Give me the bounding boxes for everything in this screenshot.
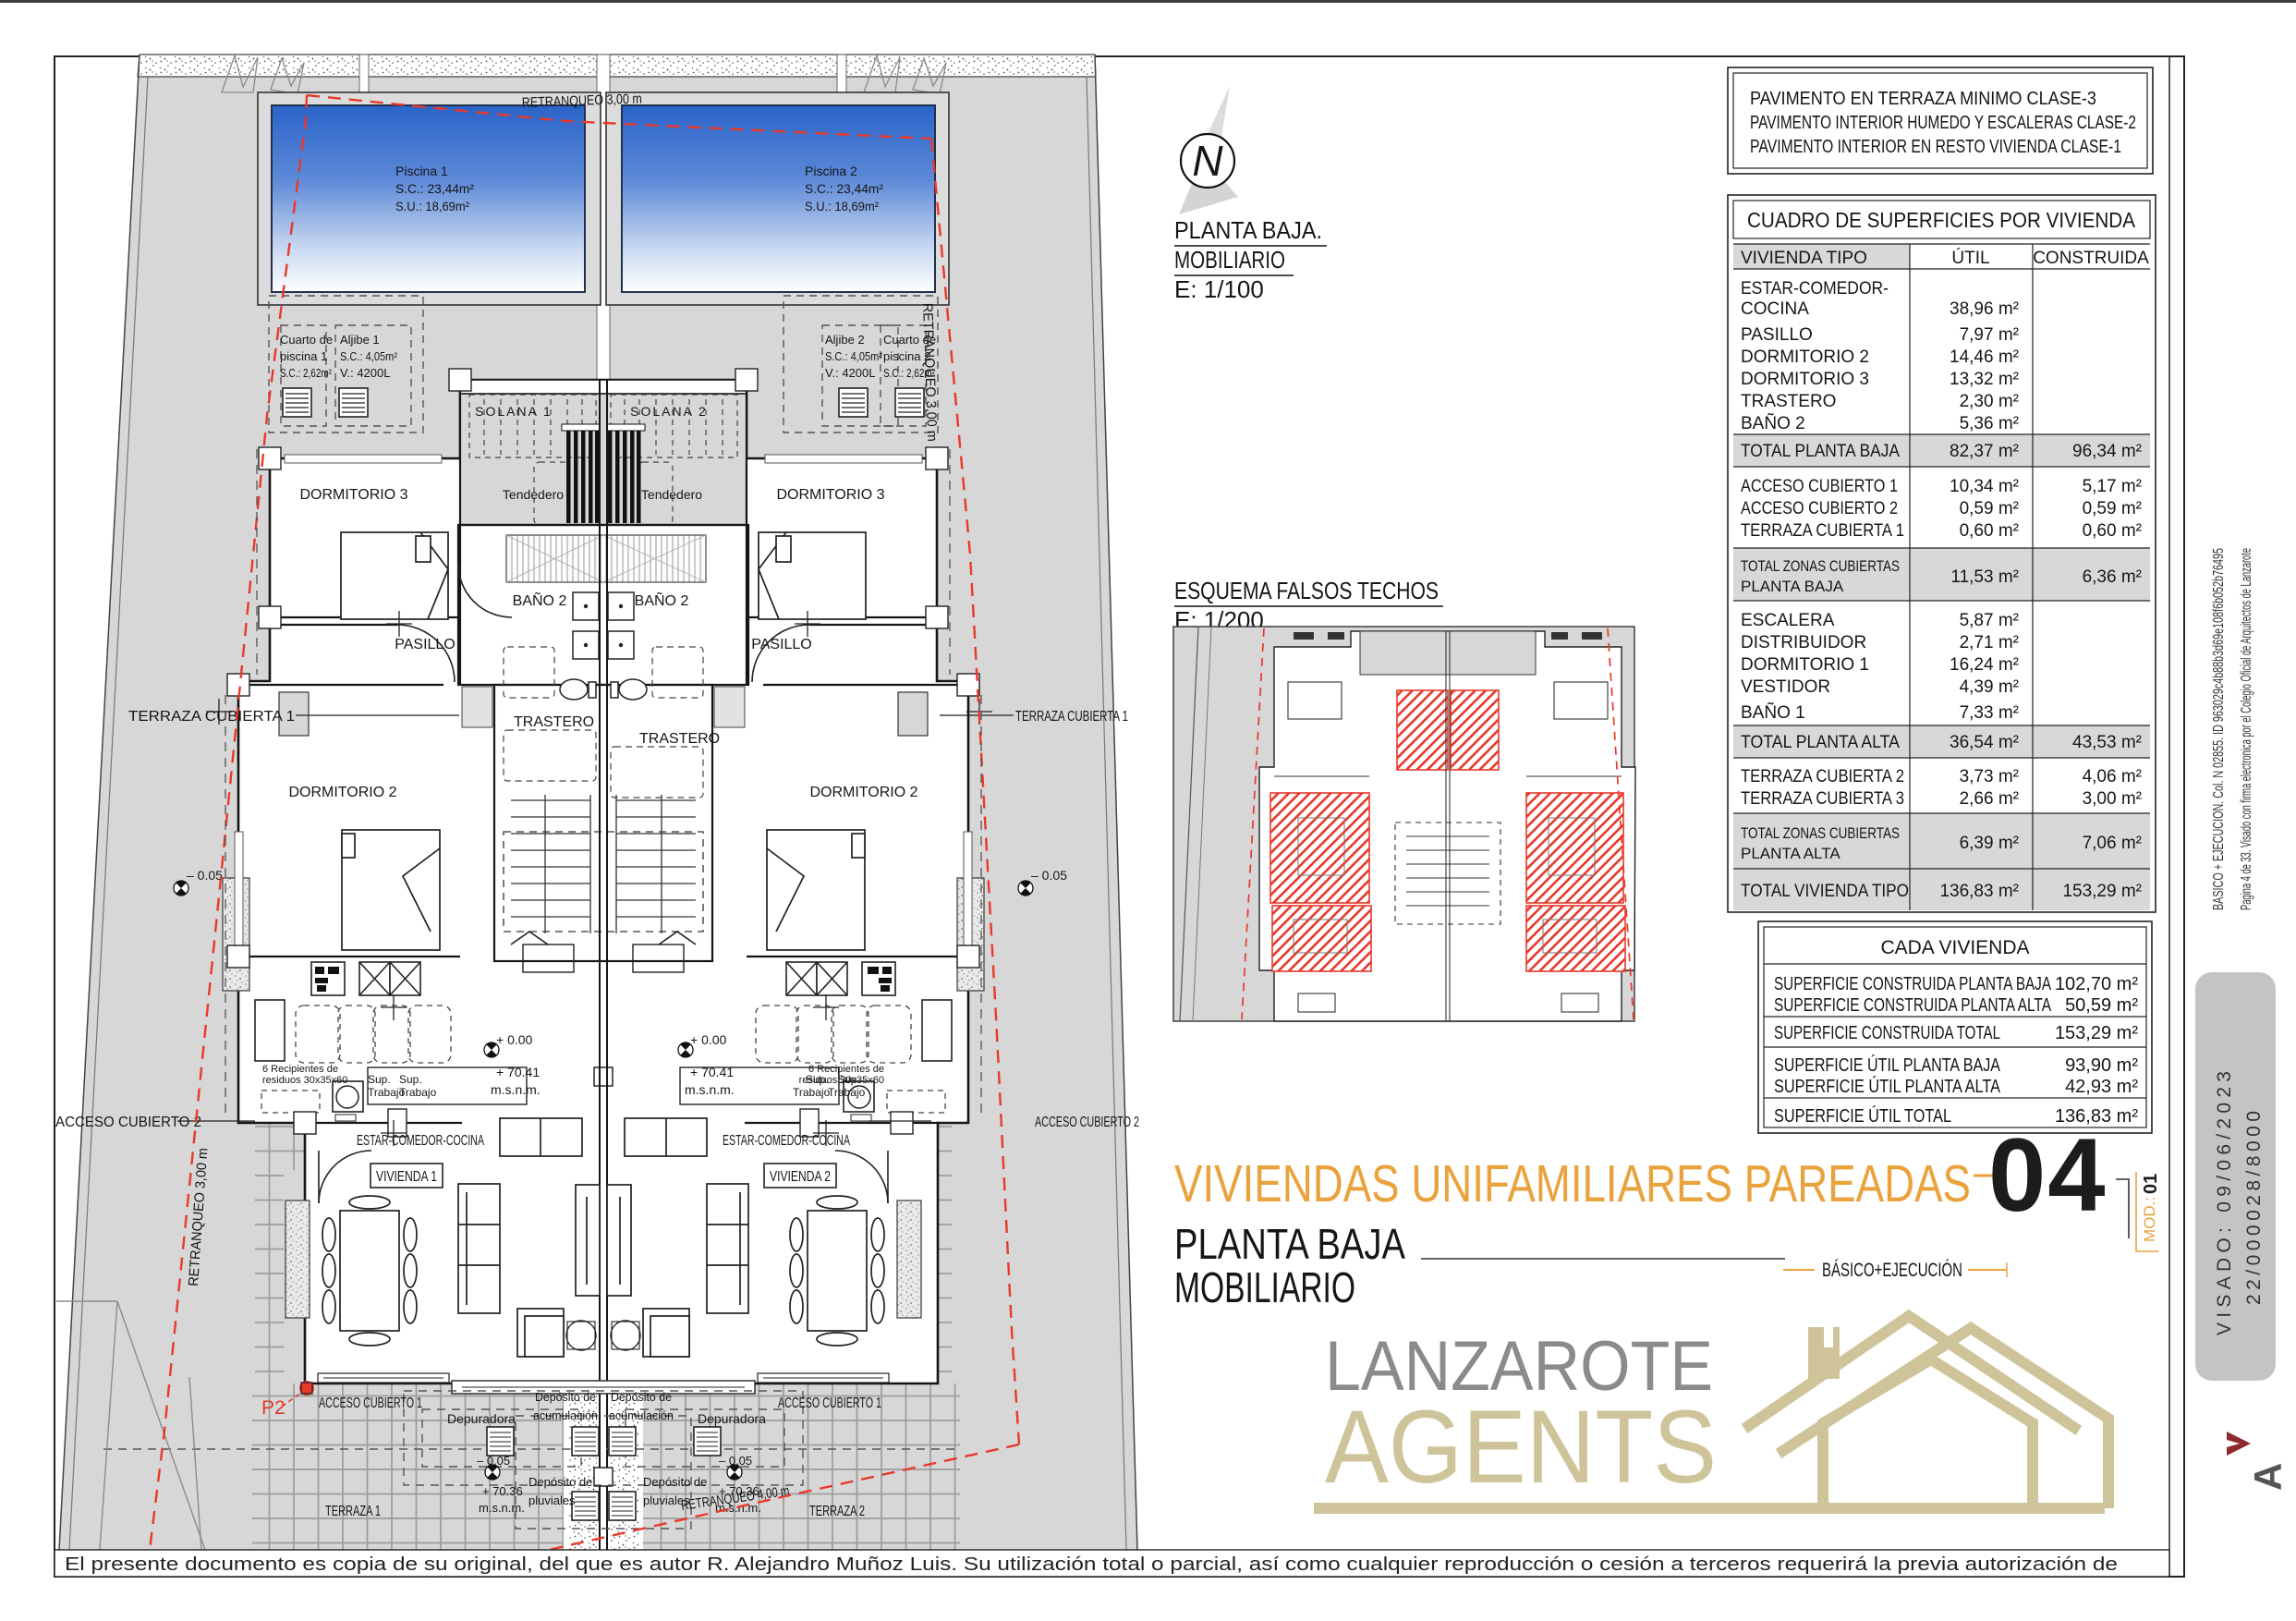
svg-text:TRASTERO: TRASTERO	[514, 714, 594, 730]
svg-text:S.C.: 4,05m²: S.C.: 4,05m²	[825, 349, 883, 363]
svg-text:AGENTS: AGENTS	[1325, 1389, 1717, 1505]
svg-text:136,83 m²: 136,83 m²	[1939, 882, 2019, 901]
svg-text:PLANTA BAJA: PLANTA BAJA	[1741, 578, 1844, 595]
svg-text:SUPERFICIE ÚTIL TOTAL: SUPERFICIE ÚTIL TOTAL	[1774, 1105, 1951, 1127]
svg-text:16,24 m²: 16,24 m²	[1950, 655, 2019, 675]
svg-text:6,36 m²: 6,36 m²	[2083, 567, 2142, 587]
svg-text:COCINA: COCINA	[1741, 299, 1809, 319]
svg-text:m.s.n.m.: m.s.n.m.	[479, 1501, 525, 1515]
svg-text:S.C.: 23,44m²: S.C.: 23,44m²	[805, 181, 883, 196]
svg-text:BÁSICO+EJECUCIÓN: BÁSICO+EJECUCIÓN	[1822, 1260, 1962, 1281]
svg-text:6 Recipientes de: 6 Recipientes de	[262, 1064, 338, 1075]
svg-text:V.: 4200L: V.: 4200L	[825, 366, 875, 380]
svg-text:36,54 m²: 36,54 m²	[1950, 733, 2019, 752]
svg-text:01: 01	[2141, 1174, 2161, 1194]
svg-text:PLANTA ALTA: PLANTA ALTA	[1741, 845, 1840, 862]
svg-text:TERRAZA CUBIERTA 1: TERRAZA CUBIERTA 1	[1015, 709, 1128, 725]
svg-text:PAVIMENTO INTERIOR HUMEDO Y ES: PAVIMENTO INTERIOR HUMEDO Y ESCALERAS CL…	[1750, 113, 2136, 133]
svg-text:residuos 30x35x60: residuos 30x35x60	[262, 1075, 347, 1086]
svg-text:m.s.n.m.: m.s.n.m.	[685, 1082, 735, 1097]
svg-text:PLANTA BAJA.: PLANTA BAJA.	[1174, 216, 1322, 244]
svg-text:DISTRIBUIDOR: DISTRIBUIDOR	[1741, 633, 1866, 652]
svg-text:TERRAZA CUBIERTA 1: TERRAZA CUBIERTA 1	[1741, 521, 1904, 541]
svg-text:– 0.05: – 0.05	[1031, 868, 1067, 883]
svg-text:S.C.: 2,62m²: S.C.: 2,62m²	[280, 366, 333, 380]
svg-text:TRASTERO: TRASTERO	[1741, 392, 1836, 411]
svg-text:Sup.: Sup.	[806, 1073, 829, 1086]
svg-text:+ 0.00: + 0.00	[496, 1032, 533, 1047]
svg-text:11,53 m²: 11,53 m²	[1950, 567, 2019, 587]
svg-text:TOTAL ZONAS CUBIERTAS: TOTAL ZONAS CUBIERTAS	[1741, 824, 1900, 842]
svg-text:+ 0.00: + 0.00	[690, 1032, 727, 1047]
svg-text:2,66 m²: 2,66 m²	[1960, 789, 2019, 809]
svg-text:TRASTERO: TRASTERO	[639, 731, 720, 747]
svg-text:ACCESO CUBIERTO 1: ACCESO CUBIERTO 1	[319, 1396, 422, 1411]
svg-text:7,97 m²: 7,97 m²	[1960, 325, 2019, 345]
svg-text:10,34 m²: 10,34 m²	[1950, 477, 2019, 496]
svg-text:ACCESO CUBIERTO 1: ACCESO CUBIERTO 1	[1741, 477, 1898, 496]
svg-text:96,34 m²: 96,34 m²	[2072, 442, 2142, 461]
svg-text:Piscina 1: Piscina 1	[395, 164, 448, 178]
svg-text:– 0.05: – 0.05	[187, 868, 223, 883]
svg-text:5,17 m²: 5,17 m²	[2083, 477, 2142, 496]
svg-text:SOLANA 1: SOLANA 1	[475, 404, 553, 419]
svg-text:Piscina 2: Piscina 2	[805, 164, 857, 178]
svg-text:E: 1/100: E: 1/100	[1174, 275, 1264, 303]
svg-text:MOBILIARIO: MOBILIARIO	[1174, 246, 1285, 274]
svg-text:CONSTRUIDA: CONSTRUIDA	[2033, 249, 2149, 268]
svg-text:SUPERFICIE CONSTRUIDA PLANTA B: SUPERFICIE CONSTRUIDA PLANTA BAJA	[1774, 974, 2052, 994]
svg-text:TOTAL PLANTA BAJA: TOTAL PLANTA BAJA	[1741, 442, 1900, 461]
svg-text:Sup.: Sup.	[399, 1073, 422, 1086]
svg-text:4,39 m²: 4,39 m²	[1960, 677, 2019, 697]
svg-text:ACCESO CUBIERTO 1: ACCESO CUBIERTO 1	[778, 1396, 881, 1411]
svg-text:DORMITORIO 2: DORMITORIO 2	[288, 785, 396, 800]
svg-text:ACCESO CUBIERTO 2: ACCESO CUBIERTO 2	[1741, 499, 1898, 518]
svg-text:VIVIENDA 2: VIVIENDA 2	[770, 1169, 831, 1185]
svg-text:TOTAL VIVIENDA TIPO: TOTAL VIVIENDA TIPO	[1741, 882, 1909, 901]
svg-text:BAÑO 2: BAÑO 2	[1741, 413, 1805, 433]
svg-text:Depósito de: Depósito de	[535, 1390, 596, 1404]
svg-text:0,60 m²: 0,60 m²	[1960, 521, 2019, 541]
svg-text:7,06 m²: 7,06 m²	[2083, 834, 2142, 853]
svg-text:Depuradora: Depuradora	[698, 1411, 766, 1426]
svg-text:MOBILIARIO: MOBILIARIO	[1174, 1263, 1355, 1311]
svg-text:+ 70.41: + 70.41	[690, 1065, 734, 1079]
svg-text:3,73 m²: 3,73 m²	[1960, 767, 2019, 786]
svg-text:5,87 m²: 5,87 m²	[1960, 611, 2019, 630]
svg-text:PASILLO: PASILLO	[751, 637, 812, 652]
svg-text:S.C.: 4,05m²: S.C.: 4,05m²	[340, 349, 398, 363]
svg-text:Depuradora: Depuradora	[447, 1411, 516, 1426]
svg-text:V.: 4200L: V.: 4200L	[340, 366, 390, 380]
svg-text:TERRAZA CUBIERTA 3: TERRAZA CUBIERTA 3	[1741, 789, 1904, 809]
svg-text:TOTAL PLANTA ALTA: TOTAL PLANTA ALTA	[1741, 733, 1900, 752]
svg-text:93,90 m²: 93,90 m²	[2065, 1055, 2138, 1076]
svg-text:PAVIMENTO INTERIOR EN RESTO VI: PAVIMENTO INTERIOR EN RESTO VIVIENDA CLA…	[1750, 137, 2121, 157]
svg-text:Pagina 4 de 33. Visado con fir: Pagina 4 de 33. Visado con firma electro…	[2239, 548, 2254, 910]
svg-text:acumulación: acumulación	[533, 1408, 598, 1422]
svg-text:Tendedero: Tendedero	[503, 487, 564, 502]
svg-text:+ 70.41: + 70.41	[496, 1065, 540, 1079]
svg-text:42,93 m²: 42,93 m²	[2065, 1077, 2138, 1097]
svg-text:DORMITORIO 3: DORMITORIO 3	[299, 487, 407, 503]
svg-text:3,00 m²: 3,00 m²	[2083, 789, 2142, 809]
svg-text:Depósito de: Depósito de	[611, 1390, 672, 1404]
svg-text:0,60 m²: 0,60 m²	[2083, 521, 2142, 541]
svg-text:CADA VIVIENDA: CADA VIVIENDA	[1880, 937, 2029, 958]
svg-text:acumulación: acumulación	[609, 1408, 674, 1422]
svg-text:ESTAR-COMEDOR-COCINA: ESTAR-COMEDOR-COCINA	[723, 1133, 850, 1149]
svg-text:SOLANA 2: SOLANA 2	[630, 404, 708, 419]
svg-text:S.C.: 23,44m²: S.C.: 23,44m²	[395, 181, 474, 196]
svg-text:A: A	[2246, 1463, 2290, 1491]
svg-text:S.U.: 18,69m²: S.U.: 18,69m²	[395, 199, 469, 213]
svg-text:13,32 m²: 13,32 m²	[1950, 370, 2019, 389]
svg-text:50,59 m²: 50,59 m²	[2065, 995, 2138, 1016]
svg-text:P2: P2	[261, 1397, 285, 1419]
svg-text:BAÑO 2: BAÑO 2	[513, 591, 567, 609]
svg-text:7,33 m²: 7,33 m²	[1960, 703, 2019, 723]
svg-text:Sup.: Sup.	[368, 1073, 391, 1086]
svg-text:PASILLO: PASILLO	[395, 637, 456, 652]
svg-text:DORMITORIO 3: DORMITORIO 3	[776, 487, 884, 503]
svg-text:Trabajo: Trabajo	[828, 1086, 866, 1099]
svg-text:0,59 m²: 0,59 m²	[2083, 499, 2142, 518]
svg-text:BAÑO 1: BAÑO 1	[1741, 702, 1805, 723]
svg-text:ESCALERA: ESCALERA	[1741, 611, 1835, 630]
svg-text:82,37 m²: 82,37 m²	[1950, 442, 2019, 461]
svg-text:PAVIMENTO EN TERRAZA MINIMO CL: PAVIMENTO EN TERRAZA MINIMO CLASE-3	[1750, 89, 2096, 109]
svg-text:m.s.n.m.: m.s.n.m.	[491, 1082, 541, 1097]
svg-text:VIVIENDA 1: VIVIENDA 1	[376, 1169, 437, 1185]
svg-text:ESQUEMA FALSOS TECHOS: ESQUEMA FALSOS TECHOS	[1174, 577, 1439, 604]
svg-text:piscina 1: piscina 1	[280, 349, 327, 363]
svg-text:153,29 m²: 153,29 m²	[2062, 882, 2142, 901]
svg-text:+ 70.36: + 70.36	[482, 1484, 523, 1498]
svg-text:43,53 m²: 43,53 m²	[2072, 733, 2142, 752]
svg-text:TOTAL ZONAS CUBIERTAS: TOTAL ZONAS CUBIERTAS	[1741, 557, 1900, 575]
svg-text:VIVIENDAS UNIFAMILIARES PAREAD: VIVIENDAS UNIFAMILIARES PAREADAS	[1174, 1154, 1971, 1213]
svg-text:Sup.: Sup.	[837, 1073, 860, 1086]
svg-text:BAÑO 2: BAÑO 2	[635, 591, 689, 609]
svg-text:Aljibe 2: Aljibe 2	[825, 333, 865, 347]
svg-text:Cuarto de: Cuarto de	[280, 333, 333, 347]
svg-text:SUPERFICIE CONSTRUIDA TOTAL: SUPERFICIE CONSTRUIDA TOTAL	[1774, 1023, 2000, 1043]
svg-text:MOD.:: MOD.:	[2141, 1197, 2158, 1242]
svg-text:Trabajo: Trabajo	[793, 1086, 831, 1099]
svg-text:ÚTIL: ÚTIL	[1951, 248, 1989, 268]
svg-text:VIVIENDA TIPO: VIVIENDA TIPO	[1741, 249, 1867, 268]
svg-text:TERRAZA 2: TERRAZA 2	[809, 1504, 865, 1519]
svg-text:Tendedero: Tendedero	[641, 487, 702, 502]
svg-text:PASILLO: PASILLO	[1741, 325, 1813, 345]
svg-text:102,70 m²: 102,70 m²	[2055, 974, 2138, 994]
svg-text:153,29 m²: 153,29 m²	[2055, 1023, 2138, 1043]
svg-text:Trabajo: Trabajo	[399, 1086, 437, 1099]
svg-text:SUPERFICIE ÚTIL PLANTA ALTA: SUPERFICIE ÚTIL PLANTA ALTA	[1774, 1076, 2001, 1097]
svg-text:S.U.: 18,69m²: S.U.: 18,69m²	[805, 199, 879, 213]
svg-text:38,96 m²: 38,96 m²	[1950, 299, 2019, 319]
svg-text:Depósito de: Depósito de	[528, 1475, 592, 1489]
svg-text:Aljibe 1: Aljibe 1	[340, 333, 380, 347]
svg-text:5,36 m²: 5,36 m²	[1960, 414, 2019, 433]
svg-text:pluviales: pluviales	[528, 1493, 576, 1507]
svg-text:El presente documento es copia: El presente documento es copia de su ori…	[65, 1554, 2118, 1575]
svg-text:VISADO: 09/06/2023: VISADO: 09/06/2023	[2214, 1071, 2235, 1335]
svg-text:TERRAZA 1: TERRAZA 1	[325, 1504, 381, 1519]
svg-text:ACCESO CUBIERTO 2: ACCESO CUBIERTO 2	[55, 1115, 201, 1130]
svg-text:ESTAR-COMEDOR-COCINA: ESTAR-COMEDOR-COCINA	[357, 1133, 484, 1149]
svg-text:SUPERFICIE CONSTRUIDA PLANTA A: SUPERFICIE CONSTRUIDA PLANTA ALTA	[1774, 995, 2052, 1016]
svg-text:DORMITORIO 3: DORMITORIO 3	[1741, 370, 1869, 389]
svg-text:2,30 m²: 2,30 m²	[1960, 392, 2019, 411]
svg-text:ACCESO CUBIERTO 2: ACCESO CUBIERTO 2	[1035, 1115, 1139, 1130]
svg-text:4,06 m²: 4,06 m²	[2083, 767, 2142, 786]
svg-text:SUPERFICIE ÚTIL PLANTA BAJA: SUPERFICIE ÚTIL PLANTA BAJA	[1774, 1054, 2001, 1076]
svg-text:0,59 m²: 0,59 m²	[1960, 499, 2019, 518]
svg-text:ESTAR-COMEDOR-: ESTAR-COMEDOR-	[1741, 279, 1889, 299]
svg-text:TERRAZA CUBIERTA 2: TERRAZA CUBIERTA 2	[1741, 767, 1904, 786]
svg-text:DORMITORIO 1: DORMITORIO 1	[1741, 655, 1869, 675]
svg-text:6,39 m²: 6,39 m²	[1960, 834, 2019, 853]
svg-text:VESTIDOR: VESTIDOR	[1741, 677, 1830, 697]
svg-text:DORMITORIO 2: DORMITORIO 2	[1741, 347, 1869, 367]
svg-text:CUADRO DE SUPERFICIES POR VIVI: CUADRO DE SUPERFICIES POR VIVIENDA	[1747, 208, 2136, 232]
svg-text:04: 04	[1988, 1117, 2108, 1233]
svg-text:DORMITORIO 2: DORMITORIO 2	[809, 785, 917, 800]
svg-text:BASICO + EJECUCION. Col. N 028: BASICO + EJECUCION. Col. N 02855. ID 963…	[2211, 548, 2227, 910]
svg-text:14,46 m²: 14,46 m²	[1950, 347, 2019, 367]
svg-text:2,71 m²: 2,71 m²	[1960, 633, 2019, 652]
svg-text:N: N	[1192, 137, 1223, 185]
svg-text:PLANTA BAJA: PLANTA BAJA	[1174, 1220, 1405, 1268]
svg-text:Depósito de: Depósito de	[643, 1475, 707, 1489]
